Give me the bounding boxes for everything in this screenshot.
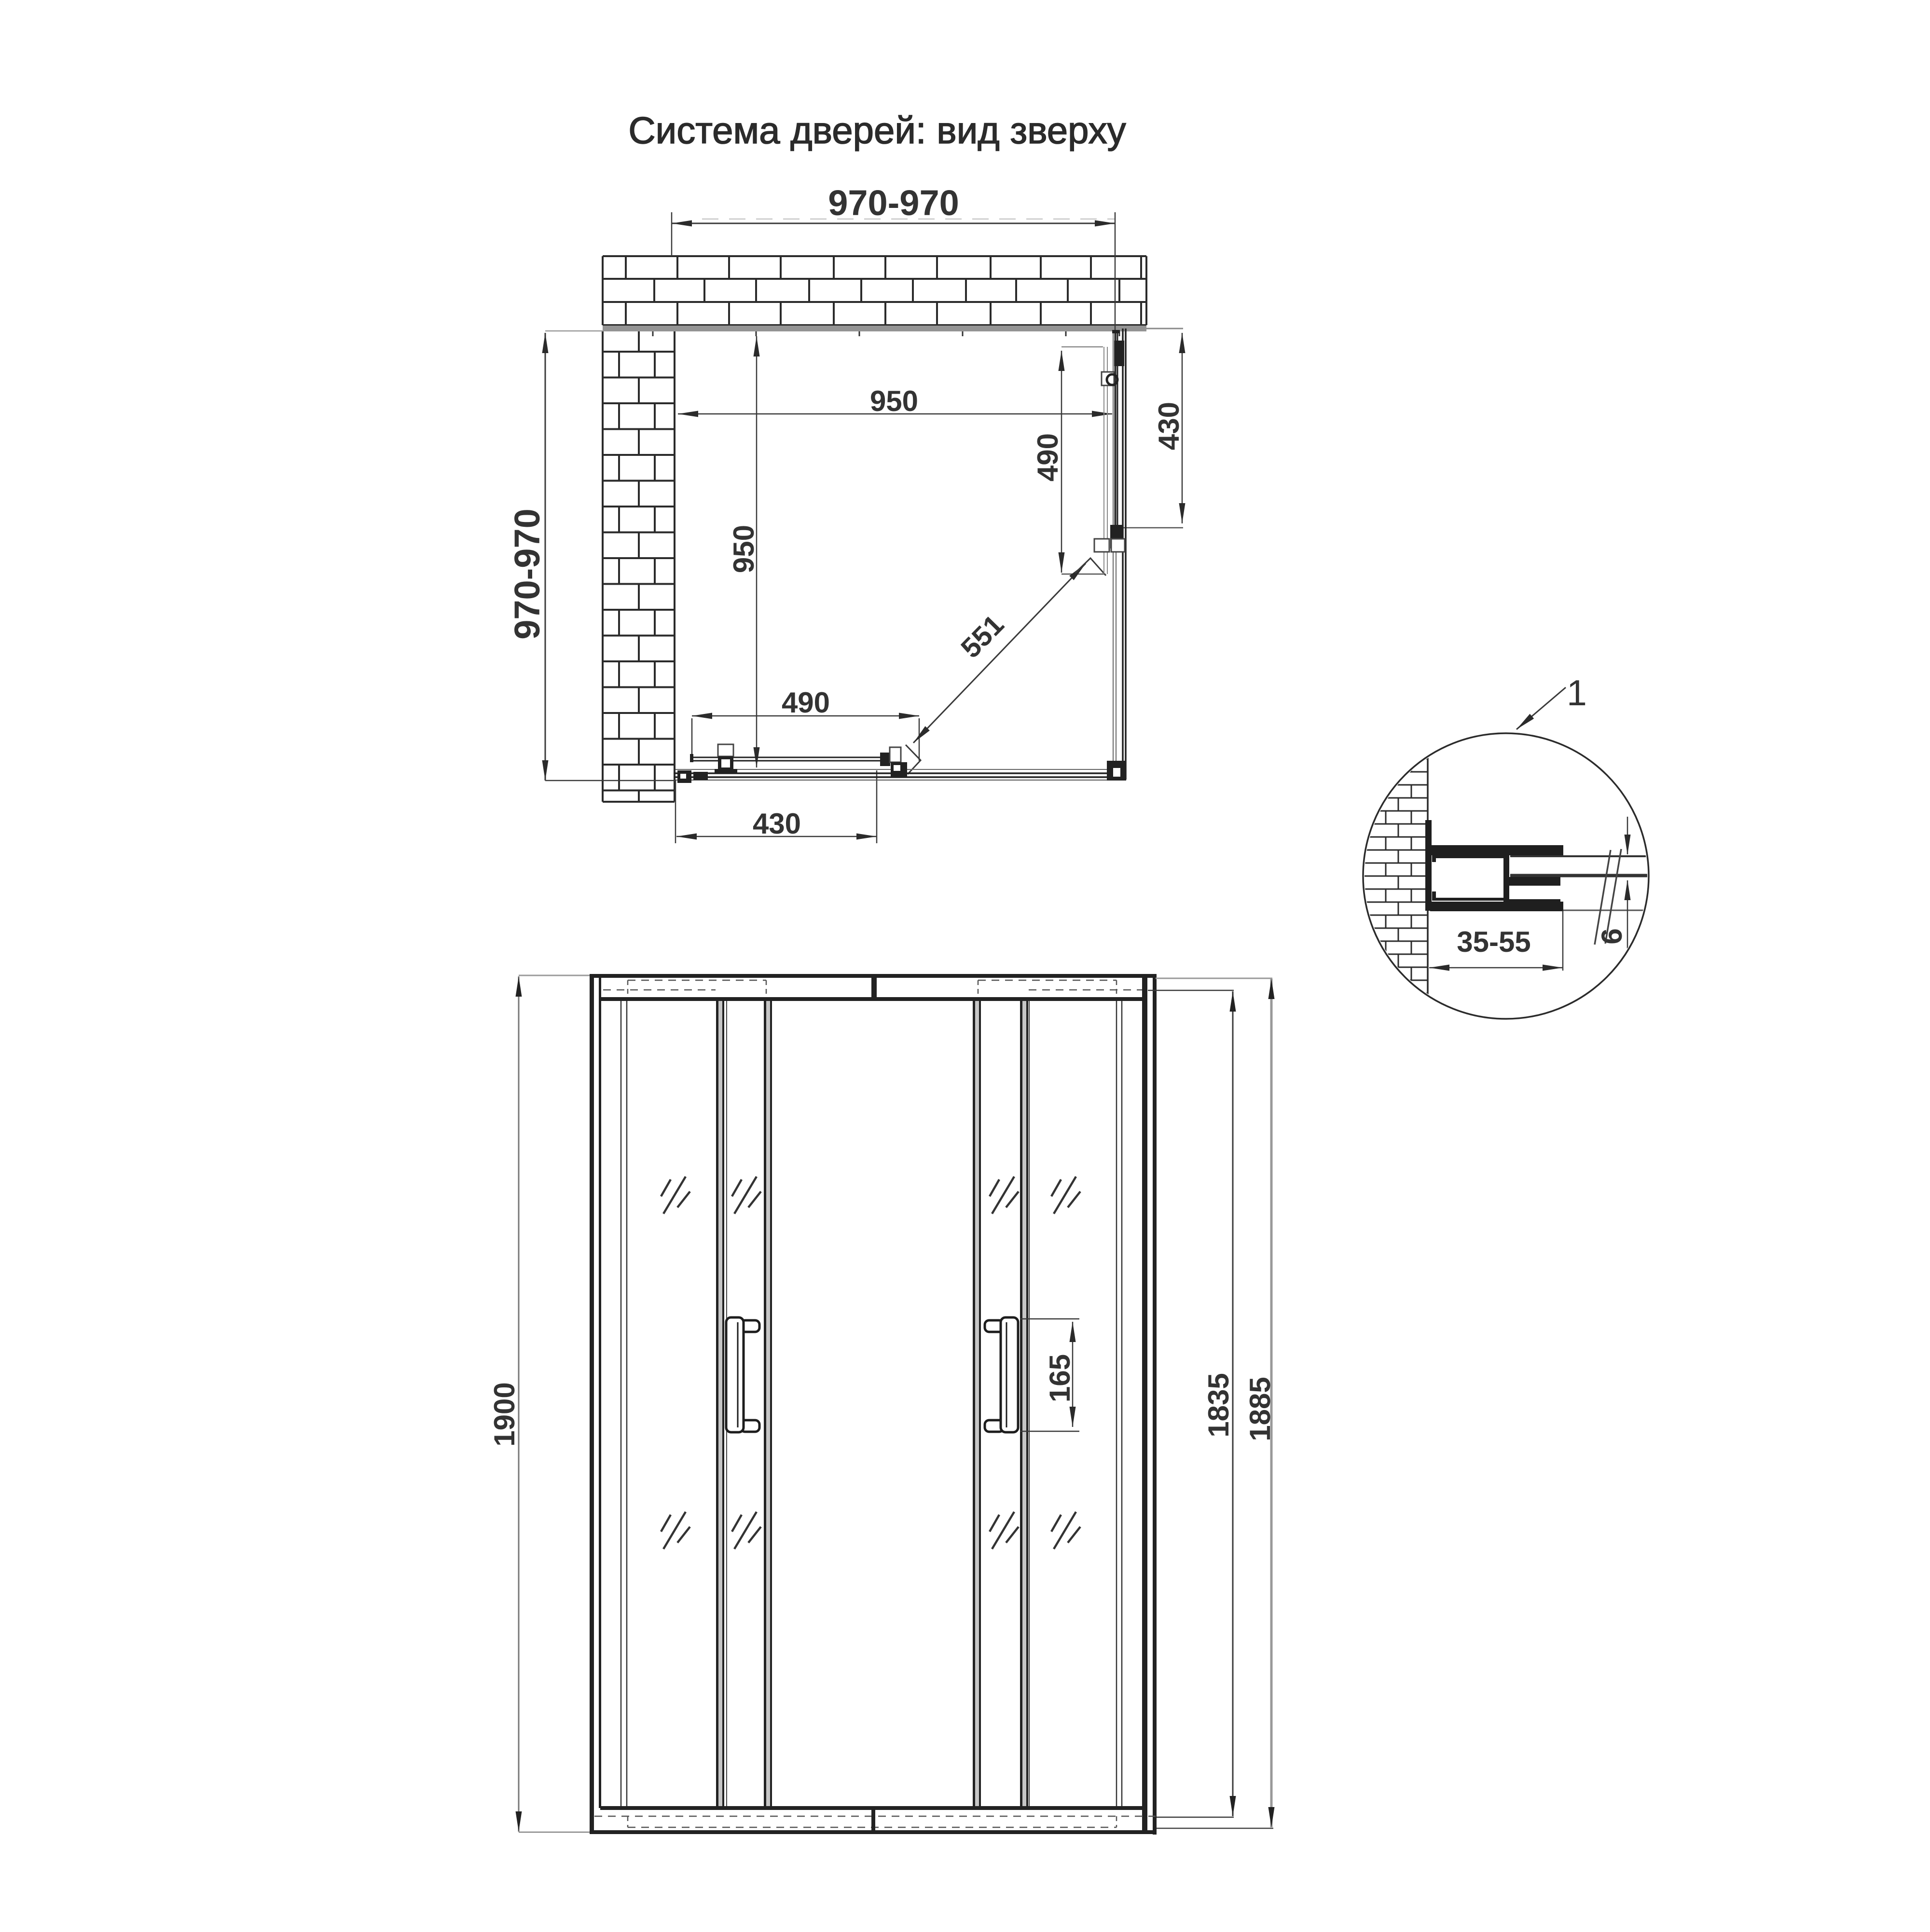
svg-text:1835: 1835 xyxy=(1202,1373,1235,1437)
svg-text:950: 950 xyxy=(870,385,918,417)
svg-text:Система дверей: вид зверху: Система дверей: вид зверху xyxy=(628,109,1126,151)
svg-text:970-970: 970-970 xyxy=(828,183,959,223)
svg-text:1: 1 xyxy=(1567,672,1587,713)
svg-text:1900: 1900 xyxy=(488,1382,521,1446)
svg-text:430: 430 xyxy=(753,808,801,840)
svg-text:165: 165 xyxy=(1044,1354,1076,1402)
svg-text:6: 6 xyxy=(1596,928,1628,944)
svg-text:950: 950 xyxy=(728,525,760,573)
svg-text:970-970: 970-970 xyxy=(507,508,547,640)
svg-text:430: 430 xyxy=(1153,402,1185,450)
svg-text:1885: 1885 xyxy=(1244,1377,1276,1441)
svg-text:490: 490 xyxy=(782,686,830,719)
svg-text:490: 490 xyxy=(1032,433,1064,481)
svg-text:35-55: 35-55 xyxy=(1457,926,1530,958)
